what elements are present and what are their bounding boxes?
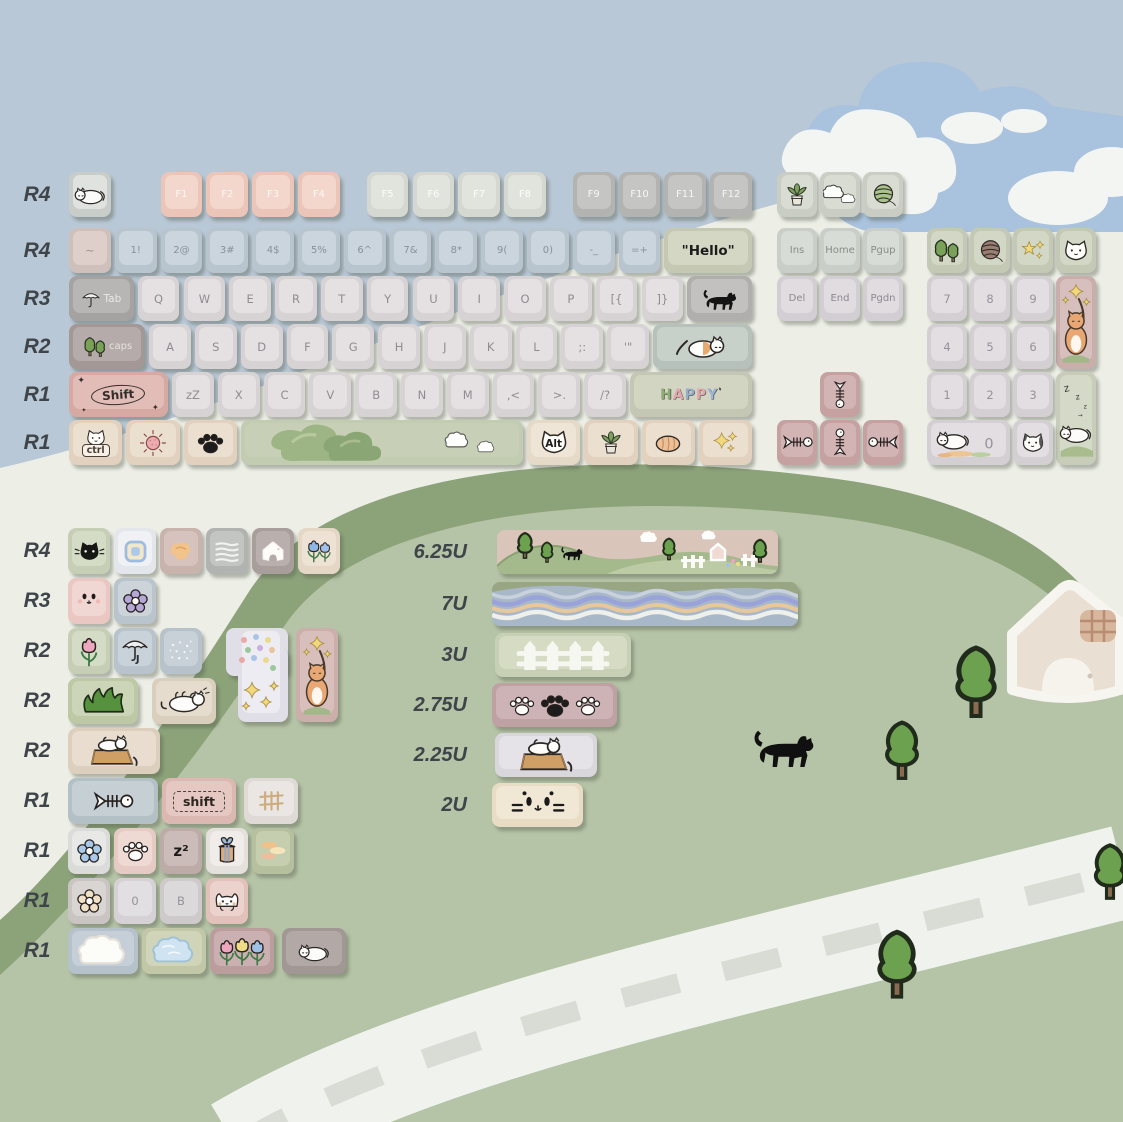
yarnb-icon (977, 237, 1004, 264)
key-legend: End (830, 293, 849, 304)
size-label-6-25u: 6.25U (383, 541, 467, 564)
key-legend: caps (109, 341, 132, 352)
key-spacebar (241, 420, 523, 465)
row-label-main-3: R2 (14, 335, 60, 359)
key-catcurl (282, 928, 346, 974)
key-del: Del (777, 276, 817, 321)
key-a: A (149, 324, 191, 369)
confetti-stars-icon (226, 628, 288, 722)
key-q: Q (138, 276, 180, 321)
key-cloudland (252, 828, 294, 874)
key-legend: Q (154, 292, 163, 306)
left-ctrl-icon: ctrl (82, 428, 110, 457)
key-6: 6 (1013, 324, 1053, 369)
key-: [{ (596, 276, 638, 321)
key-legend: J (443, 340, 446, 354)
key-legend: Ins (790, 245, 805, 256)
row-label-extras-4: R2 (14, 739, 60, 763)
key-4: 4$ (252, 228, 294, 273)
key-f3: F3 (252, 172, 294, 217)
key-legend: 1 (943, 388, 950, 402)
flowerb-icon (76, 838, 103, 865)
key-cloudw (68, 928, 138, 974)
key-f8: F8 (504, 172, 546, 217)
key-legend: O (520, 292, 529, 306)
key-: ;: (561, 324, 603, 369)
key-r: R (275, 276, 317, 321)
bunny-icon (75, 589, 103, 612)
enter-cat-icon (673, 333, 731, 361)
row-label-main-4: R1 (14, 383, 60, 407)
key-legend: F9 (588, 189, 600, 200)
key-stars (1013, 228, 1053, 273)
key-b: B (160, 878, 202, 924)
key-legend: S (212, 340, 219, 354)
cloudw-icon (77, 935, 129, 967)
key-legend: ;: (578, 340, 586, 354)
key-legend: F6 (427, 189, 439, 200)
key-legend: P (567, 292, 574, 306)
size-label-2-25u: 2.25U (383, 744, 467, 767)
key-numpad-plus-cat (1056, 276, 1096, 369)
key-legend: M (463, 388, 473, 402)
key-menu-plant (584, 420, 637, 465)
svg-text:J: J (135, 654, 140, 665)
key-frame (114, 528, 156, 574)
key-iso-enter-confetti (226, 628, 288, 722)
key-pflower (114, 578, 156, 624)
arrow-up-fishbone-icon (832, 380, 849, 410)
tulip3-icon (216, 935, 268, 967)
key-legend: Pgup (870, 245, 895, 256)
catbox-icon (88, 734, 140, 769)
key-j: J (114, 628, 156, 674)
catpeek-icon (213, 889, 241, 914)
stars-icon (1019, 237, 1047, 263)
key-legend: >. (553, 388, 566, 402)
key-9: 9( (481, 228, 523, 273)
svg-text:z: z (1075, 392, 1081, 402)
key-left-ctrl: ctrl (69, 420, 122, 465)
key-legend: E (247, 292, 254, 306)
key-f10: F10 (619, 172, 661, 217)
key-u: U (413, 276, 455, 321)
key-legend: W (199, 292, 210, 306)
key-legend: 7& (403, 245, 417, 256)
key-paww (114, 828, 156, 874)
key-d: D (241, 324, 283, 369)
key-k: K (470, 324, 512, 369)
key-1: 1 (927, 372, 967, 417)
key-f4: F4 (298, 172, 340, 217)
svg-text:0: 0 (984, 437, 993, 453)
key-rain (160, 628, 202, 674)
z2-icon: z² (173, 842, 188, 860)
svg-text:z: z (1084, 403, 1087, 410)
key-legend: Pgdn (870, 293, 895, 304)
key-legend: 7 (943, 292, 950, 306)
key-f6: F6 (413, 172, 455, 217)
key-t: T (321, 276, 363, 321)
key-legend: V (326, 388, 334, 402)
key-legend: U (429, 292, 437, 306)
key-: ~ (69, 228, 111, 273)
key-v: V (309, 372, 351, 417)
pflower-icon (122, 588, 149, 615)
key-oblob (160, 528, 202, 574)
key-f7: F7 (458, 172, 500, 217)
key-spacebar-2-25u (495, 733, 597, 777)
key-l: L (516, 324, 558, 369)
key-spacebar-6-25u (497, 530, 778, 574)
row-label-extras-8: R1 (14, 939, 60, 963)
key-0: 0) (527, 228, 569, 273)
key-arrow-right-fishbone (863, 420, 903, 465)
row-label-main-1: R4 (14, 239, 60, 263)
key-legend: T (338, 292, 345, 306)
key-bunny (68, 578, 110, 624)
key-legend: ]} (656, 292, 668, 306)
key-5: 5 (970, 324, 1010, 369)
key-8: 8* (435, 228, 477, 273)
key-backslash-black-cat (687, 276, 752, 321)
tab-icon: Tab (81, 289, 121, 309)
key-legend: F5 (382, 189, 394, 200)
key-numpad-enter-cat: zzz→ (1056, 372, 1096, 465)
key-legend: 4$ (267, 245, 280, 256)
key-: -_ (573, 228, 615, 273)
key-legend: 5% (311, 245, 327, 256)
key-b: B (355, 372, 397, 417)
key-spacebar-7u (492, 582, 798, 626)
key-legend: C (281, 388, 289, 402)
row-label-extras-3: R2 (14, 689, 60, 713)
key-fence2 (244, 778, 298, 824)
gift-icon (213, 836, 241, 866)
key-legend: X (235, 388, 243, 402)
housei-icon (259, 539, 287, 564)
left-alt-paw-icon (197, 430, 224, 455)
key-legend: F1 (175, 189, 187, 200)
key-x: X (218, 372, 260, 417)
spacebar-2u-icon (502, 787, 574, 823)
oblob-icon (167, 539, 195, 564)
key-legend: 4 (943, 340, 950, 354)
shiftd-icon: shift (173, 791, 225, 812)
key-f1: F1 (161, 172, 203, 217)
key-: >. (538, 372, 580, 417)
key-grass (68, 678, 138, 724)
key-legend: F11 (676, 189, 694, 200)
row-label-extras-6: R1 (14, 839, 60, 863)
key-f11: F11 (664, 172, 706, 217)
key-7: 7 (927, 276, 967, 321)
capslock-icon: caps (82, 335, 132, 358)
esc-icon (72, 183, 108, 206)
key-tulip2b (298, 528, 340, 574)
key-legend: 8 (986, 292, 993, 306)
rain-icon (166, 638, 196, 664)
key-e: E (229, 276, 271, 321)
key-legend: 2@ (173, 245, 189, 256)
key-4: 4 (927, 324, 967, 369)
key-legend: F10 (630, 189, 648, 200)
umbj-icon: J (120, 636, 150, 666)
key-legend: 1! (131, 245, 141, 256)
key-zz: zZ (172, 372, 214, 417)
key-win-sun (126, 420, 179, 465)
key-catbox (68, 728, 160, 774)
key-legend: I (477, 292, 480, 306)
right-shift-happy-icon: HAPPY' (660, 387, 722, 403)
key-yarng (863, 172, 903, 217)
key-spacebar-3u (495, 633, 631, 677)
frame-icon (122, 538, 149, 565)
key-fishr2 (68, 778, 158, 824)
key-capslock: caps (69, 324, 145, 369)
key-5: 5% (298, 228, 340, 273)
key-numpad-0-cat: 0 (927, 420, 1010, 465)
key-legend: 9 (1029, 292, 1036, 306)
key-spacebar-2u (492, 783, 583, 827)
cathead-icon (1061, 238, 1091, 263)
scrib-icon (212, 538, 242, 564)
key-legend: =+ (631, 245, 648, 256)
flowert-icon (76, 888, 103, 915)
key-ins: Ins (777, 228, 817, 273)
key-2: 2 (970, 372, 1010, 417)
key-i: I (458, 276, 500, 321)
size-label-2u: 2U (383, 794, 467, 817)
key-s: S (195, 324, 237, 369)
tulip1-icon (77, 634, 101, 667)
key-numpad-dot-cat (1013, 420, 1053, 465)
key-legend: F12 (722, 189, 740, 200)
row-label-main-5: R1 (14, 431, 60, 455)
key-esc (69, 172, 111, 217)
key-legend: 6 (1029, 340, 1036, 354)
row-label-extras-1: R3 (14, 589, 60, 613)
key-housei (252, 528, 294, 574)
key-legend: N (418, 388, 427, 402)
key-legend: B (372, 388, 380, 402)
arrow-left-fishbone-icon (781, 433, 814, 451)
arrow-down-fishbone-icon (832, 428, 849, 458)
key-blackhead (68, 528, 110, 574)
spacebar-2-75u-icon (509, 691, 601, 719)
key-n: N (401, 372, 443, 417)
paww-icon (122, 838, 149, 863)
key-tab: Tab (69, 276, 134, 321)
svg-text:→: → (1078, 413, 1083, 419)
size-label-7u: 7U (383, 593, 467, 616)
key-legend: F4 (313, 189, 325, 200)
fishr2-icon (91, 789, 135, 813)
key-0: 0 (114, 878, 156, 924)
key-pgup: Pgup (863, 228, 903, 273)
key-legend: A (166, 340, 174, 354)
row-label-extras-2: R2 (14, 639, 60, 663)
key-legend: Del (789, 293, 806, 304)
key-legend: Y (384, 292, 391, 306)
right-alt-icon: Alt (537, 428, 571, 456)
spacebar-icon (241, 420, 523, 465)
key-legend: B (177, 894, 185, 908)
key-catpeek (206, 878, 248, 924)
key-left-shift: Shift✦✦✦ (69, 372, 168, 417)
key-shift: shift (162, 778, 236, 824)
key-1: 1! (115, 228, 157, 273)
key-legend: K (487, 340, 495, 354)
key-arrow-left-fishbone (777, 420, 817, 465)
row-label-extras-7: R1 (14, 889, 60, 913)
row-label-extras-5: R1 (14, 789, 60, 813)
numpad-0-cat-icon: 0 (932, 425, 1006, 459)
key-legend: 5 (986, 340, 993, 354)
size-label-3u: 3U (383, 644, 467, 667)
key-spacebar-2-75u (492, 683, 617, 727)
key-flowert (68, 878, 110, 924)
key-f5: F5 (367, 172, 409, 217)
key-legend: Tab (103, 293, 121, 305)
key-legend: ,< (507, 388, 520, 402)
cloudb-icon (150, 936, 198, 966)
key-legend: F (304, 340, 311, 354)
key-h: H (378, 324, 420, 369)
key-: =+ (619, 228, 661, 273)
key-legend: zZ (186, 388, 200, 402)
key-trees (927, 228, 967, 273)
key-legend: D (257, 340, 266, 354)
key-home: Home (820, 228, 860, 273)
key-flowerb (68, 828, 110, 874)
fence2-icon (258, 789, 285, 813)
key-yarnb (970, 228, 1010, 273)
key-legend: 2 (986, 388, 993, 402)
key-arrow-down-fishbone (820, 420, 860, 465)
key-legend: 6^ (357, 245, 372, 256)
key-scrib (206, 528, 248, 574)
key-legend: F2 (221, 189, 233, 200)
key-legend: -_ (589, 245, 598, 256)
key-plant (777, 172, 817, 217)
key-legend: 8* (451, 245, 462, 256)
svg-text:z: z (1062, 382, 1071, 395)
key-legend: G (349, 340, 358, 354)
key-enter-cat (653, 324, 752, 369)
key-o: O (504, 276, 546, 321)
key-gift (206, 828, 248, 874)
catbelly-icon (158, 687, 210, 716)
key-7: 7& (390, 228, 432, 273)
key-: ,< (493, 372, 535, 417)
key-legend: F7 (473, 189, 485, 200)
key-: /? (584, 372, 626, 417)
plant-icon (784, 181, 810, 208)
key-j: J (424, 324, 466, 369)
key-pgdn: Pgdn (863, 276, 903, 321)
trees-icon (932, 237, 962, 264)
key-2: 2@ (161, 228, 203, 273)
key-legend: 3 (1029, 388, 1036, 402)
spacebar-7u-icon (492, 582, 798, 626)
menu-plant-icon (598, 429, 624, 456)
key-legend: L (533, 340, 539, 354)
key-legend: ~ (85, 244, 94, 257)
key-y: Y (367, 276, 409, 321)
size-label-2-75u: 2.75U (383, 694, 467, 717)
spacebar-6-25u-icon (497, 530, 778, 574)
key-tulip3 (210, 928, 274, 974)
key-catbelly (152, 678, 216, 724)
fn-sparkles-icon (710, 428, 740, 456)
key-: ]} (642, 276, 684, 321)
key-legend: '" (624, 340, 632, 354)
key-legend: R (292, 292, 300, 306)
key-right-ctrl-bread (642, 420, 695, 465)
row-label-extras-0: R4 (14, 539, 60, 563)
key-backspace: "Hello" (664, 228, 752, 273)
key-arrow-up-fishbone (820, 372, 860, 417)
key-legend: 0 (131, 894, 138, 908)
backspace-icon: "Hello" (682, 243, 735, 259)
key-legend: 9( (497, 245, 507, 256)
key-3: 3 (1013, 372, 1053, 417)
key-legend: Home (825, 245, 855, 256)
key-left-alt-paw (184, 420, 237, 465)
numpad-enter-cat-icon: zzz→ (1057, 377, 1095, 461)
key-legend: 3# (220, 245, 235, 256)
key-f9: F9 (573, 172, 615, 217)
key-8: 8 (970, 276, 1010, 321)
key-legend: [{ (611, 292, 623, 306)
key-clouds (820, 172, 860, 217)
key-g: G (332, 324, 374, 369)
clouds-icon (823, 183, 857, 206)
key-6: 6^ (344, 228, 386, 273)
key-9: 9 (1013, 276, 1053, 321)
spacebar-2-25u-icon (517, 736, 575, 775)
key-cathead (1056, 228, 1096, 273)
tulip2b-icon (304, 537, 334, 566)
key-c: C (264, 372, 306, 417)
key-right-shift-happy: HAPPY' (630, 372, 752, 417)
key-tulip1 (68, 628, 110, 674)
catcurl-icon (296, 940, 332, 963)
left-shift-icon: Shift✦✦✦ (91, 385, 145, 405)
key-w: W (184, 276, 226, 321)
key-3: 3# (206, 228, 248, 273)
right-ctrl-bread-icon (652, 431, 684, 455)
key-f2: F2 (206, 172, 248, 217)
key-legend: /? (600, 388, 610, 402)
numpad-plus-cat-icon (1057, 281, 1095, 365)
key-f12: F12 (710, 172, 752, 217)
cloudland-icon (259, 839, 287, 862)
key-right-alt: Alt (527, 420, 580, 465)
key-legend: F3 (267, 189, 279, 200)
arrow-right-fishbone-icon (867, 433, 900, 451)
key-f: F (287, 324, 329, 369)
key-tall-cat-star (296, 628, 338, 722)
blackhead-icon (74, 539, 105, 564)
key-: '" (607, 324, 649, 369)
key-end: End (820, 276, 860, 321)
spacebar-3u-icon (511, 636, 615, 674)
yarng-icon (870, 181, 897, 208)
tall-cat-star-icon (298, 633, 336, 717)
grass-icon (80, 686, 126, 715)
